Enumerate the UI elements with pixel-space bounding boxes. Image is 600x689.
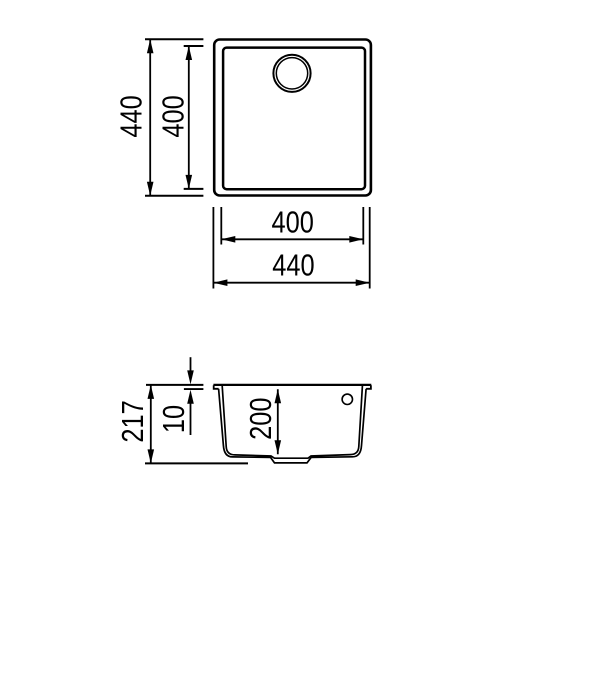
svg-text:400: 400: [272, 205, 314, 240]
svg-text:440: 440: [272, 248, 314, 283]
svg-text:217: 217: [116, 400, 151, 442]
svg-text:400: 400: [156, 95, 191, 137]
svg-text:200: 200: [244, 398, 279, 440]
svg-text:440: 440: [114, 95, 149, 137]
svg-text:10: 10: [157, 405, 192, 433]
